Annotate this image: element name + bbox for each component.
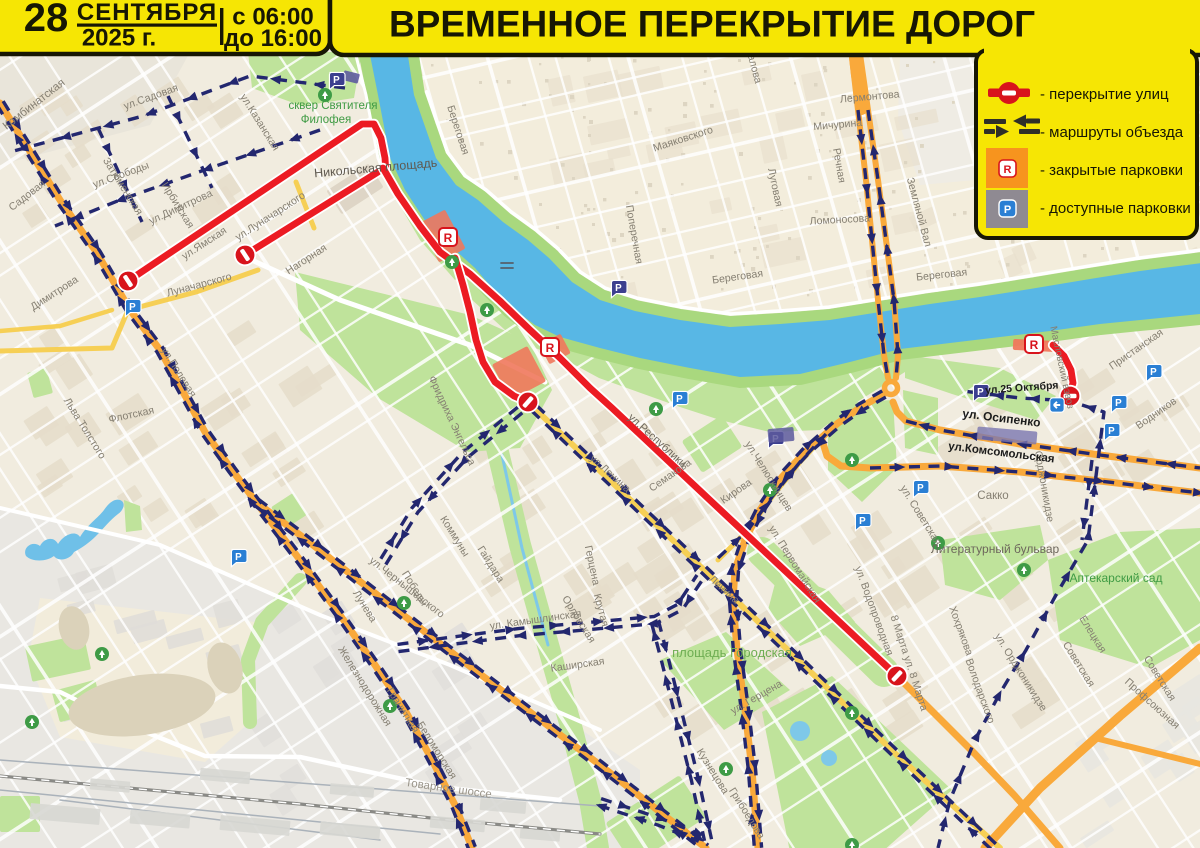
svg-text:Сакко: Сакко	[977, 490, 1008, 502]
svg-text:Аптекарский сад: Аптекарский сад	[1069, 571, 1162, 585]
svg-text:P: P	[615, 283, 622, 294]
svg-text:P: P	[333, 75, 340, 86]
svg-text:P: P	[1108, 426, 1115, 437]
svg-text:P: P	[1115, 398, 1122, 409]
svg-text:P: P	[235, 552, 242, 563]
svg-text:28: 28	[24, 0, 69, 40]
svg-text:P: P	[1150, 367, 1157, 378]
svg-text:P: P	[129, 302, 136, 313]
svg-text:площадь Городская: площадь Городская	[672, 645, 792, 660]
svg-text:R: R	[1030, 338, 1039, 352]
svg-text:- доступные парковки: - доступные парковки	[1040, 200, 1191, 217]
svg-text:ВРЕМЕННОЕ ПЕРЕКРЫТИЕ ДОРОГ: ВРЕМЕННОЕ ПЕРЕКРЫТИЕ ДОРОГ	[389, 4, 1035, 45]
svg-text:R: R	[546, 341, 555, 355]
svg-text:P: P	[1004, 204, 1011, 216]
svg-text:P: P	[917, 483, 924, 494]
svg-text:R: R	[1004, 164, 1012, 176]
svg-text:СЕНТЯБРЯ: СЕНТЯБРЯ	[77, 0, 217, 26]
svg-text:сквер Святителя: сквер Святителя	[288, 100, 377, 112]
svg-text:P: P	[676, 394, 683, 405]
svg-text:Литературный бульвар: Литературный бульвар	[931, 542, 1060, 556]
svg-text:P: P	[977, 387, 984, 398]
svg-text:Филофея: Филофея	[301, 114, 352, 126]
svg-text:P: P	[859, 516, 866, 527]
svg-text:- перекрытие улиц: - перекрытие улиц	[1040, 86, 1169, 103]
svg-text:до 16:00: до 16:00	[224, 25, 322, 52]
svg-text:R: R	[444, 231, 453, 245]
svg-text:2025 г.: 2025 г.	[82, 25, 156, 52]
svg-text:- закрытые парковки: - закрытые парковки	[1040, 162, 1183, 179]
svg-text:- маршруты объезда: - маршруты объезда	[1040, 124, 1184, 141]
